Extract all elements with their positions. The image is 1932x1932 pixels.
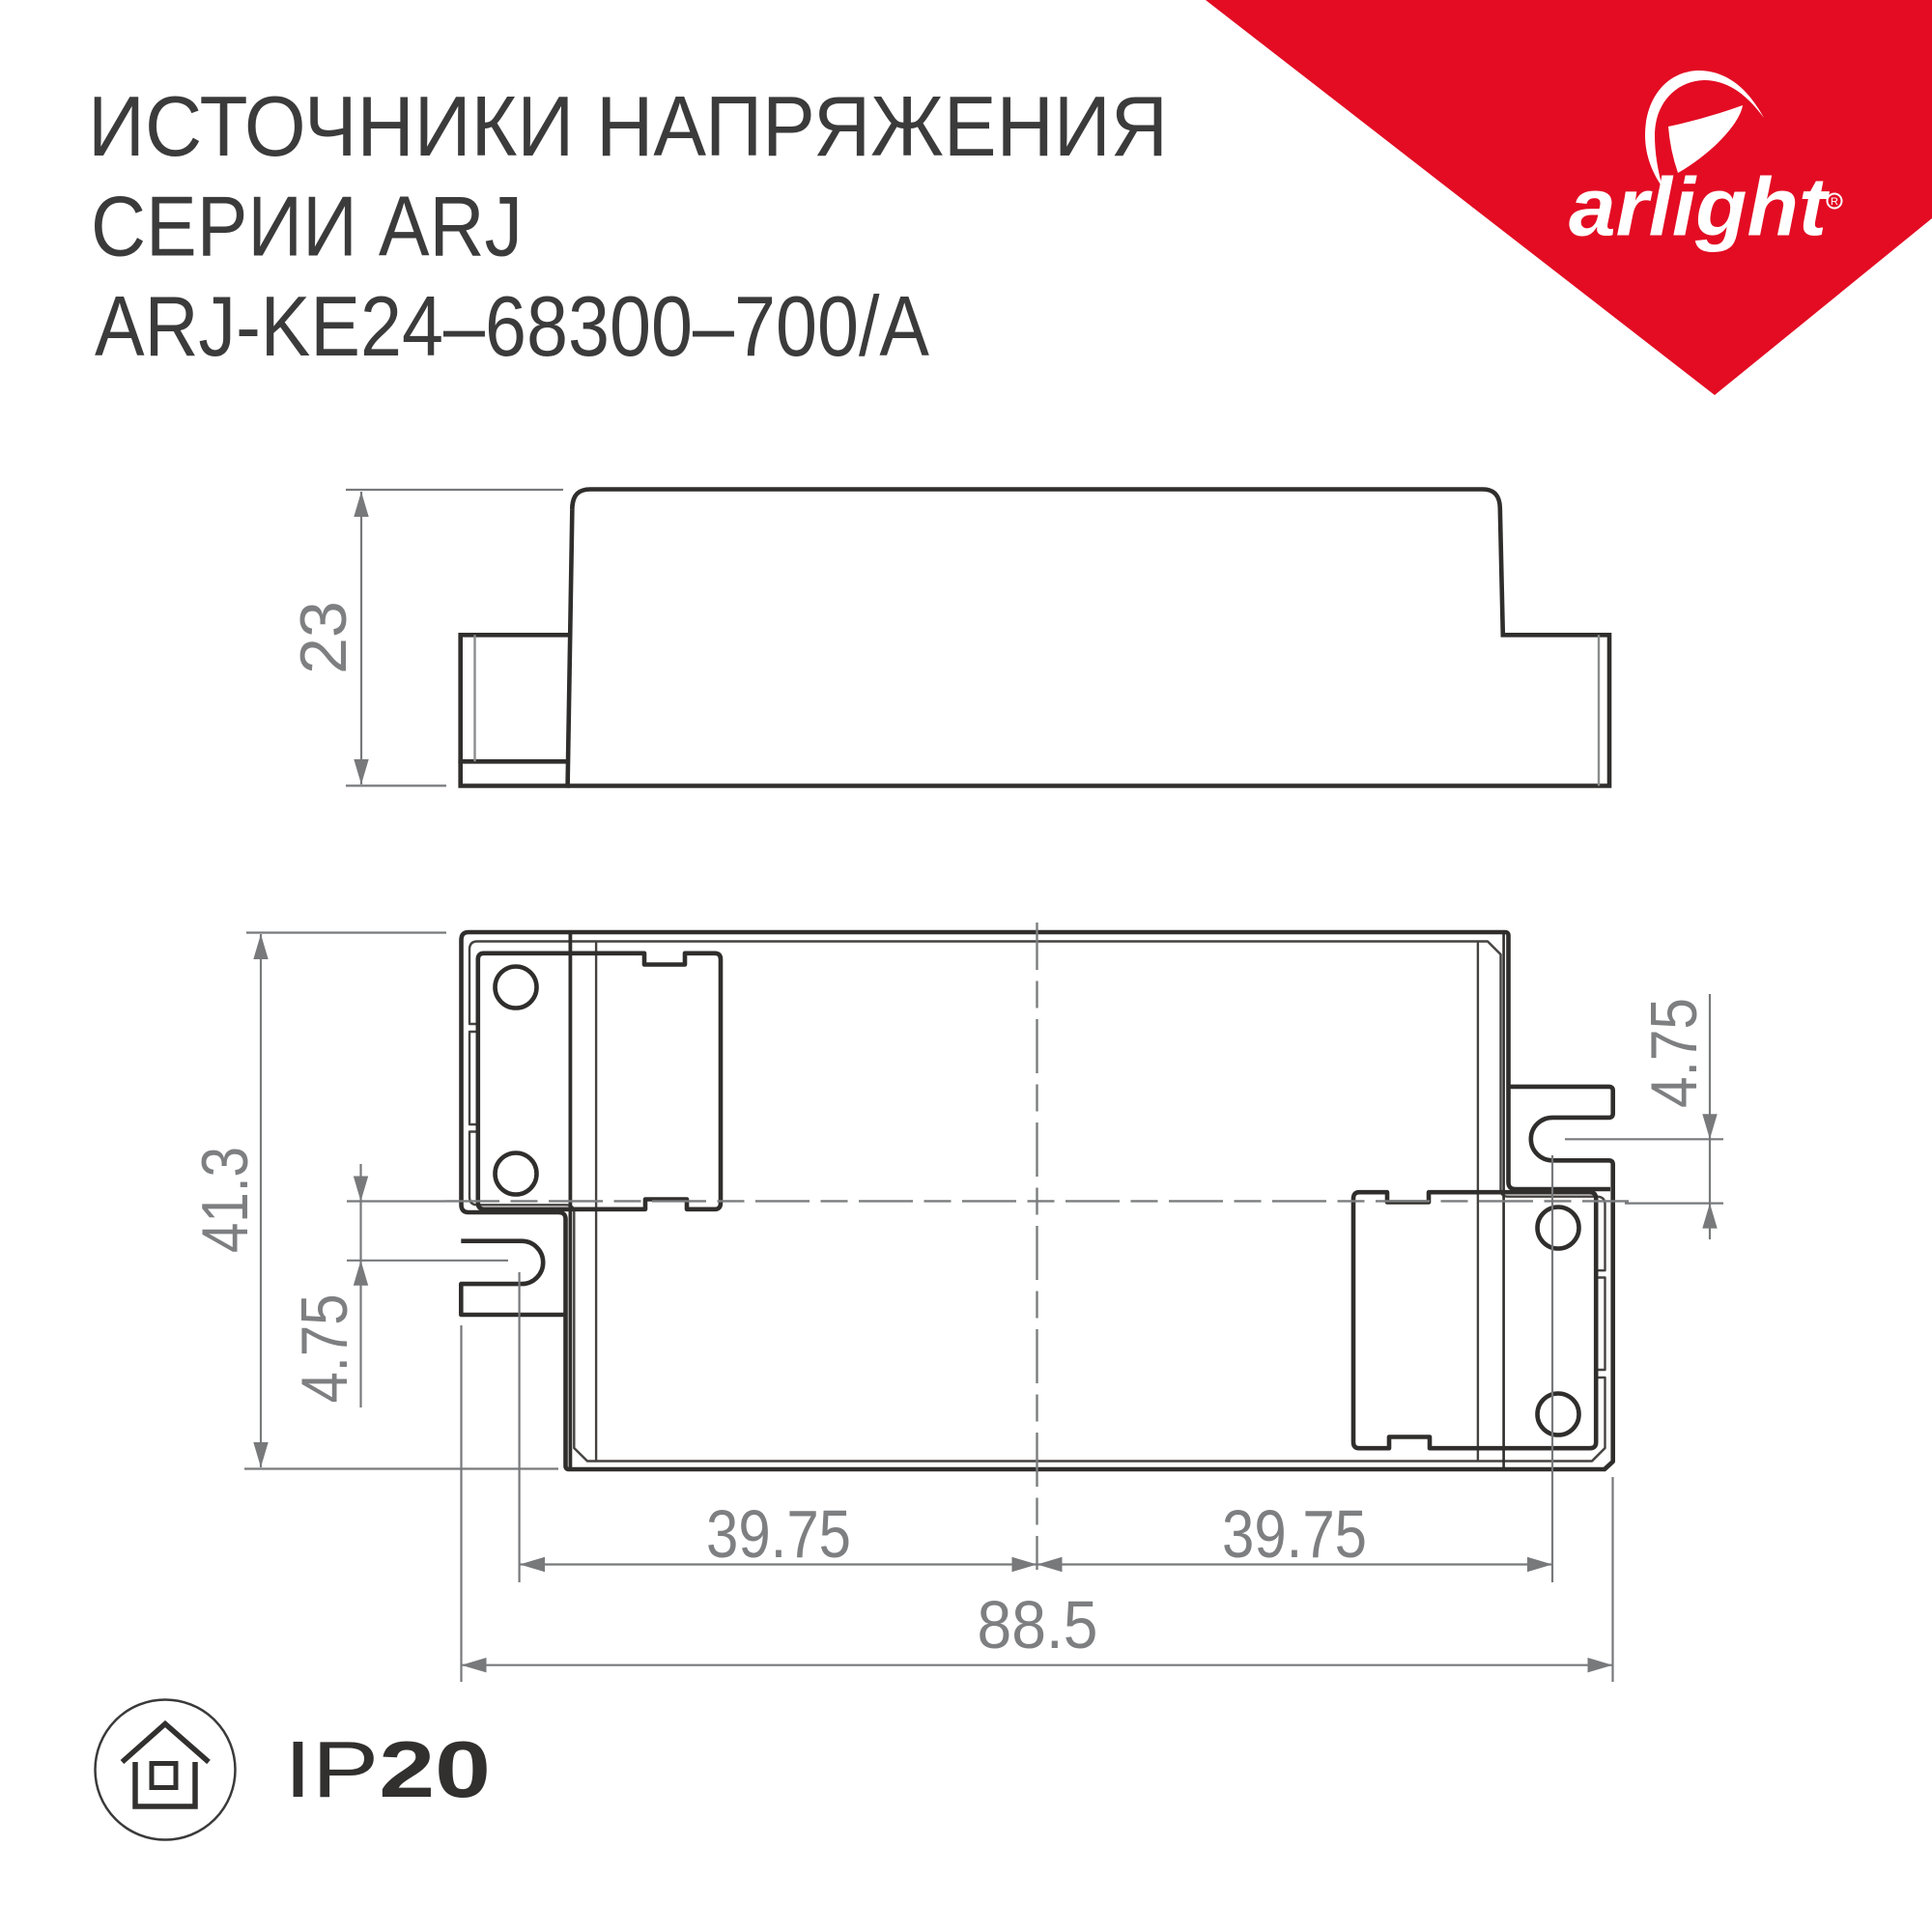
svg-text:41.3: 41.3 — [188, 1147, 262, 1253]
svg-text:23: 23 — [287, 601, 360, 674]
svg-text:39.75: 39.75 — [1222, 1496, 1367, 1572]
svg-text:88.5: 88.5 — [978, 1587, 1098, 1662]
svg-text:39.75: 39.75 — [706, 1496, 851, 1572]
svg-text:СЕРИИ ARJ: СЕРИИ ARJ — [91, 178, 523, 273]
svg-text:R: R — [1831, 196, 1838, 208]
svg-text:ИСТОЧНИКИ НАПРЯЖЕНИЯ: ИСТОЧНИКИ НАПРЯЖЕНИЯ — [88, 78, 1168, 174]
svg-text:IP20: IP20 — [284, 1724, 491, 1814]
svg-text:4.75: 4.75 — [1637, 998, 1711, 1108]
svg-text:ARJ-KE24–68300–700/A: ARJ-KE24–68300–700/A — [95, 278, 929, 374]
svg-text:4.75: 4.75 — [288, 1294, 361, 1404]
svg-text:arlight: arlight — [1569, 162, 1831, 254]
